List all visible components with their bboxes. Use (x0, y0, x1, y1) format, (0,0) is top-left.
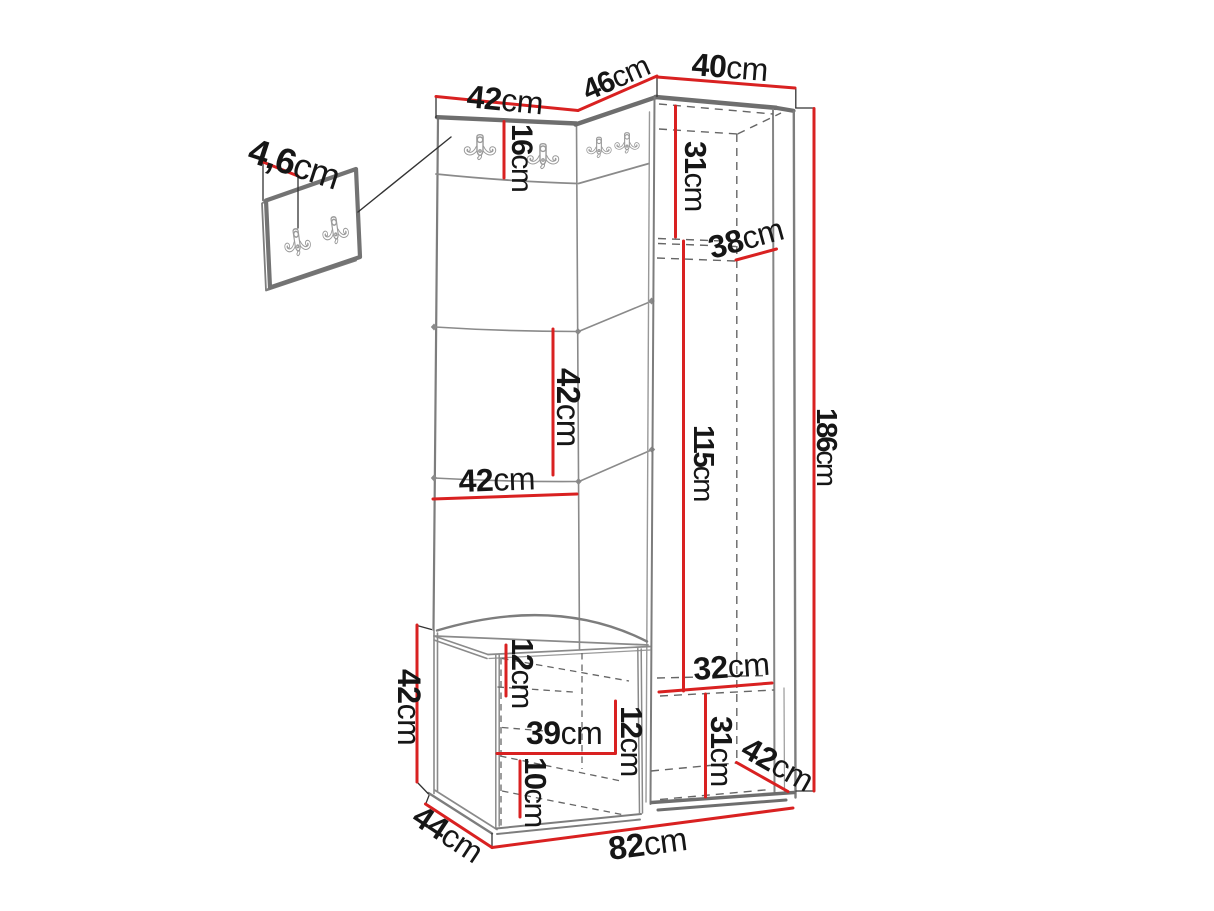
svg-text:12cm: 12cm (614, 706, 649, 776)
svg-text:46cm: 46cm (578, 49, 655, 107)
svg-text:115cm: 115cm (687, 425, 719, 501)
svg-text:40cm: 40cm (690, 46, 769, 88)
svg-text:42cm: 42cm (465, 78, 544, 121)
svg-text:32cm: 32cm (692, 646, 771, 687)
svg-text:31cm: 31cm (704, 716, 739, 786)
svg-text:42cm: 42cm (736, 730, 820, 799)
svg-text:82cm: 82cm (606, 820, 689, 867)
svg-text:39cm: 39cm (526, 715, 602, 751)
svg-text:42cm: 42cm (391, 669, 427, 745)
svg-text:31cm: 31cm (678, 141, 713, 211)
svg-text:186cm: 186cm (810, 408, 842, 486)
svg-text:4,6cm: 4,6cm (244, 130, 345, 198)
svg-text:16cm: 16cm (505, 124, 538, 192)
svg-text:44cm: 44cm (406, 798, 489, 870)
svg-text:12cm: 12cm (505, 638, 540, 708)
svg-text:10cm: 10cm (518, 757, 553, 827)
svg-text:42cm: 42cm (458, 460, 535, 499)
svg-text:42cm: 42cm (550, 368, 587, 447)
